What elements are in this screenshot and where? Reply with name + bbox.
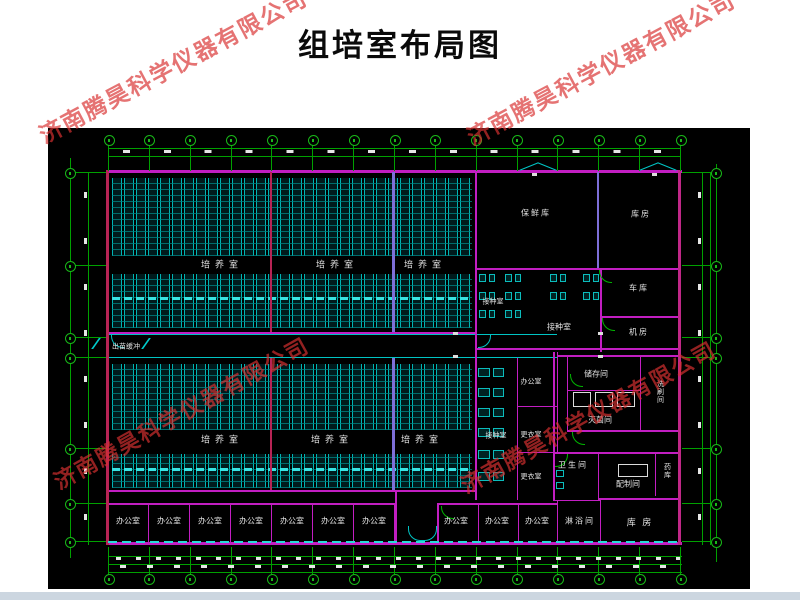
break-mark-icon [141,338,156,349]
wall [392,358,395,490]
wall [108,490,475,492]
axis-stem [353,547,354,575]
axis-stem [394,145,395,171]
room-label-shower: 淋浴间 [565,517,595,526]
axis-stem [598,145,599,171]
axis-bubble [594,574,605,585]
wall [557,355,680,357]
axis-bubble [65,444,76,455]
room-label-office: 办公室 [198,517,222,526]
axis-stem [108,145,109,171]
wall [517,406,557,407]
axis-bubble [512,574,523,585]
axis-connector [682,337,711,338]
room-label-warehouse: 库房 [631,210,651,219]
axis-stem [557,547,558,575]
axis-stem [476,547,477,575]
room-label-prep: 配制间 [616,480,640,489]
clean-bench-icon [583,274,599,282]
axis-connector [682,503,711,504]
wall [557,352,558,452]
page-title: 组培室布局图 [0,20,800,65]
door-swing-icon [602,318,615,331]
wall [678,170,681,545]
room-label-inoculation: 接种室 [486,432,507,441]
clean-bench-icon [479,274,495,282]
axis-bubble [553,574,564,585]
axis-stem [353,145,354,171]
axis-stem [149,145,150,171]
dim-mark [532,173,537,176]
axis-bubble [711,168,722,179]
door-swing-icon [570,374,583,387]
room-label-office: 办公室 [525,517,549,526]
axis-stem [394,547,395,575]
axis-bubble [711,333,722,344]
room-label-office: 办公室 [362,517,386,526]
clean-bench-icon [505,310,521,318]
axis-bubble [512,135,523,146]
axis-bubble [711,444,722,455]
fixture-icon [556,482,564,489]
wall [553,452,680,454]
room-label-culture: 培养室 [316,261,358,270]
wall [106,170,109,545]
axis-bubble [65,499,76,510]
axis-bubble [65,168,76,179]
axis-connector [682,265,711,266]
axis-bubble [185,135,196,146]
wall [600,268,602,352]
room-label-warehouse2: 库 房 [627,519,654,528]
door-swing-icon [572,432,585,445]
culture-shelf-band [112,274,472,328]
axis-connector [682,448,711,449]
wall [655,452,656,496]
door-post-icon [453,332,458,335]
culture-shelf-band [112,178,472,256]
clean-bench-icon [478,388,504,397]
axis-bubble [65,537,76,548]
room-label-office: 办公室 [157,517,181,526]
axis-bubble [308,574,319,585]
prep-table-icon [618,464,648,477]
dim-ticks [108,150,680,153]
clean-bench-icon [505,292,521,300]
autoclave-icon [617,392,635,407]
dim-line [88,172,89,545]
axis-bubble [635,135,646,146]
room-label-office: 办公室 [521,378,542,387]
room-label-changing: 更衣室 [521,473,542,482]
axis-bubble [65,261,76,272]
clean-bench-icon [478,450,504,459]
axis-stem [680,547,681,575]
door-post-icon [598,355,603,358]
room-label-culture: 培养室 [201,436,243,445]
axis-stem [639,547,640,575]
axis-connector [75,265,106,266]
axis-bubble [267,135,278,146]
axis-bubble [349,574,360,585]
wall [557,500,558,543]
wall [598,452,599,498]
wall [553,500,600,501]
axis-connector [75,541,106,542]
room-label-office: 办公室 [444,517,468,526]
clean-bench-icon [583,292,599,300]
axis-bubble [308,135,319,146]
axis-stem [231,145,232,171]
wall [567,355,568,430]
axis-bubble [65,333,76,344]
room-label-culture: 培养室 [404,261,446,270]
clean-bench-icon [550,292,566,300]
wall [597,172,599,268]
clean-bench-icon [505,274,521,282]
axis-bubble [711,537,722,548]
wall [640,355,641,430]
culture-shelf-band [112,364,472,430]
axis-stem [108,547,109,575]
dim-ticks [84,172,87,545]
room-label-office: 办公室 [239,517,263,526]
axis-connector [682,357,711,358]
axis-stem [312,547,313,575]
axis-connector [682,541,711,542]
axis-stem [517,145,518,171]
break-mark-icon [91,338,106,349]
room-label-inoculation: 接种室 [483,298,504,307]
room-label-buffer: 出苗缓冲 [112,343,140,352]
axis-stem [231,547,232,575]
axis-bubble [711,499,722,510]
room-label-office: 办公室 [116,517,140,526]
room-label-culture: 培养室 [311,436,353,445]
axis-stem [190,547,191,575]
axis-stem [435,547,436,575]
axis-connector [75,172,106,173]
axis-bubble [430,574,441,585]
room-label-toilet: 卫生间 [558,461,588,470]
wall [553,352,555,500]
clean-bench-icon [478,408,504,417]
axis-connector [75,503,106,504]
axis-bubble [594,135,605,146]
room-label-medicine: 药库 [663,463,672,479]
room-label-machine: 机房 [629,328,649,337]
axis-stem [271,547,272,575]
axis-bubble [226,574,237,585]
wall [108,357,557,358]
page-footer-strip [0,592,800,600]
room-label-fresh-keeping: 保鲜库 [521,209,551,218]
axis-bubble [144,135,155,146]
autoclave-icon [595,392,613,407]
axis-bubble [185,574,196,585]
door-swing-icon [408,526,423,541]
wall [567,390,640,391]
slide-page: 组培室布局图 [0,0,800,600]
clean-bench-icon [478,472,504,481]
dim-ticks [108,557,680,560]
room-label-office: 办公室 [280,517,304,526]
axis-bubble [471,574,482,585]
room-label-office: 办公室 [485,517,509,526]
wall [392,172,395,332]
axis-stem [190,145,191,171]
axis-stem [435,145,436,171]
wall [598,498,680,500]
axis-bubble [430,135,441,146]
axis-stem [149,547,150,575]
axis-bubble [104,574,115,585]
axis-bubble [226,135,237,146]
dim-line [108,572,682,573]
axis-stem [271,145,272,171]
axis-stem [680,145,681,171]
room-label-sterilize: 灭菌间 [588,416,612,425]
axis-bubble [65,353,76,364]
room-label-garage: 车库 [629,284,649,293]
axis-bubble [144,574,155,585]
fixture-icon [556,470,564,477]
wall [475,268,680,270]
axis-connector [682,172,711,173]
wall [475,172,477,500]
axis-stem [517,547,518,575]
axis-bubble [711,353,722,364]
dim-ticks [698,172,701,545]
axis-stem [312,145,313,171]
floor-plan-drawing: 培养室 培养室 培养室 培养室 培养室 培养室 出苗缓冲 保鲜库 库房 车库 机… [48,128,750,589]
axis-bubble [553,135,564,146]
room-label-storage: 储存间 [584,370,608,379]
wall-accent [108,541,680,543]
axis-stem [557,145,558,171]
wall [517,358,518,500]
room-label-office: 办公室 [321,517,345,526]
axis-bubble [676,574,687,585]
door-post-icon [453,355,458,358]
dim-line [702,172,703,545]
axis-bubble [349,135,360,146]
wall [270,358,272,490]
wall [517,452,557,453]
axis-connector [75,448,106,449]
axis-stem [598,547,599,575]
axis-bubble [471,135,482,146]
axis-bubble [635,574,646,585]
axis-bubble [711,261,722,272]
dim-mark [652,173,657,176]
wall [270,172,272,332]
dim-ticks [108,565,680,568]
room-label-culture: 培养室 [401,436,443,445]
autoclave-icon [573,392,591,407]
clean-bench-icon [478,368,504,377]
axis-bubble [390,574,401,585]
room-label-changing: 更衣室 [521,431,542,440]
room-label-culture: 培养室 [201,261,243,270]
axis-stem [476,145,477,171]
door-swing-icon [422,526,437,541]
room-label-washing: 洗刷间 [656,380,665,404]
culture-shelf-band [112,454,472,488]
door-post-icon [598,332,603,335]
roof-break-icon [640,162,676,171]
clean-bench-icon [479,310,495,318]
axis-bubble [676,135,687,146]
room-label-inoculation: 接种室 [547,323,571,332]
roof-break-icon [520,162,556,171]
wall [600,498,601,543]
axis-bubble [104,135,115,146]
door-swing-icon [478,335,491,348]
wall [475,348,680,350]
axis-connector [75,357,106,358]
axis-bubble [390,135,401,146]
axis-bubble [267,574,278,585]
clean-bench-icon [550,274,566,282]
